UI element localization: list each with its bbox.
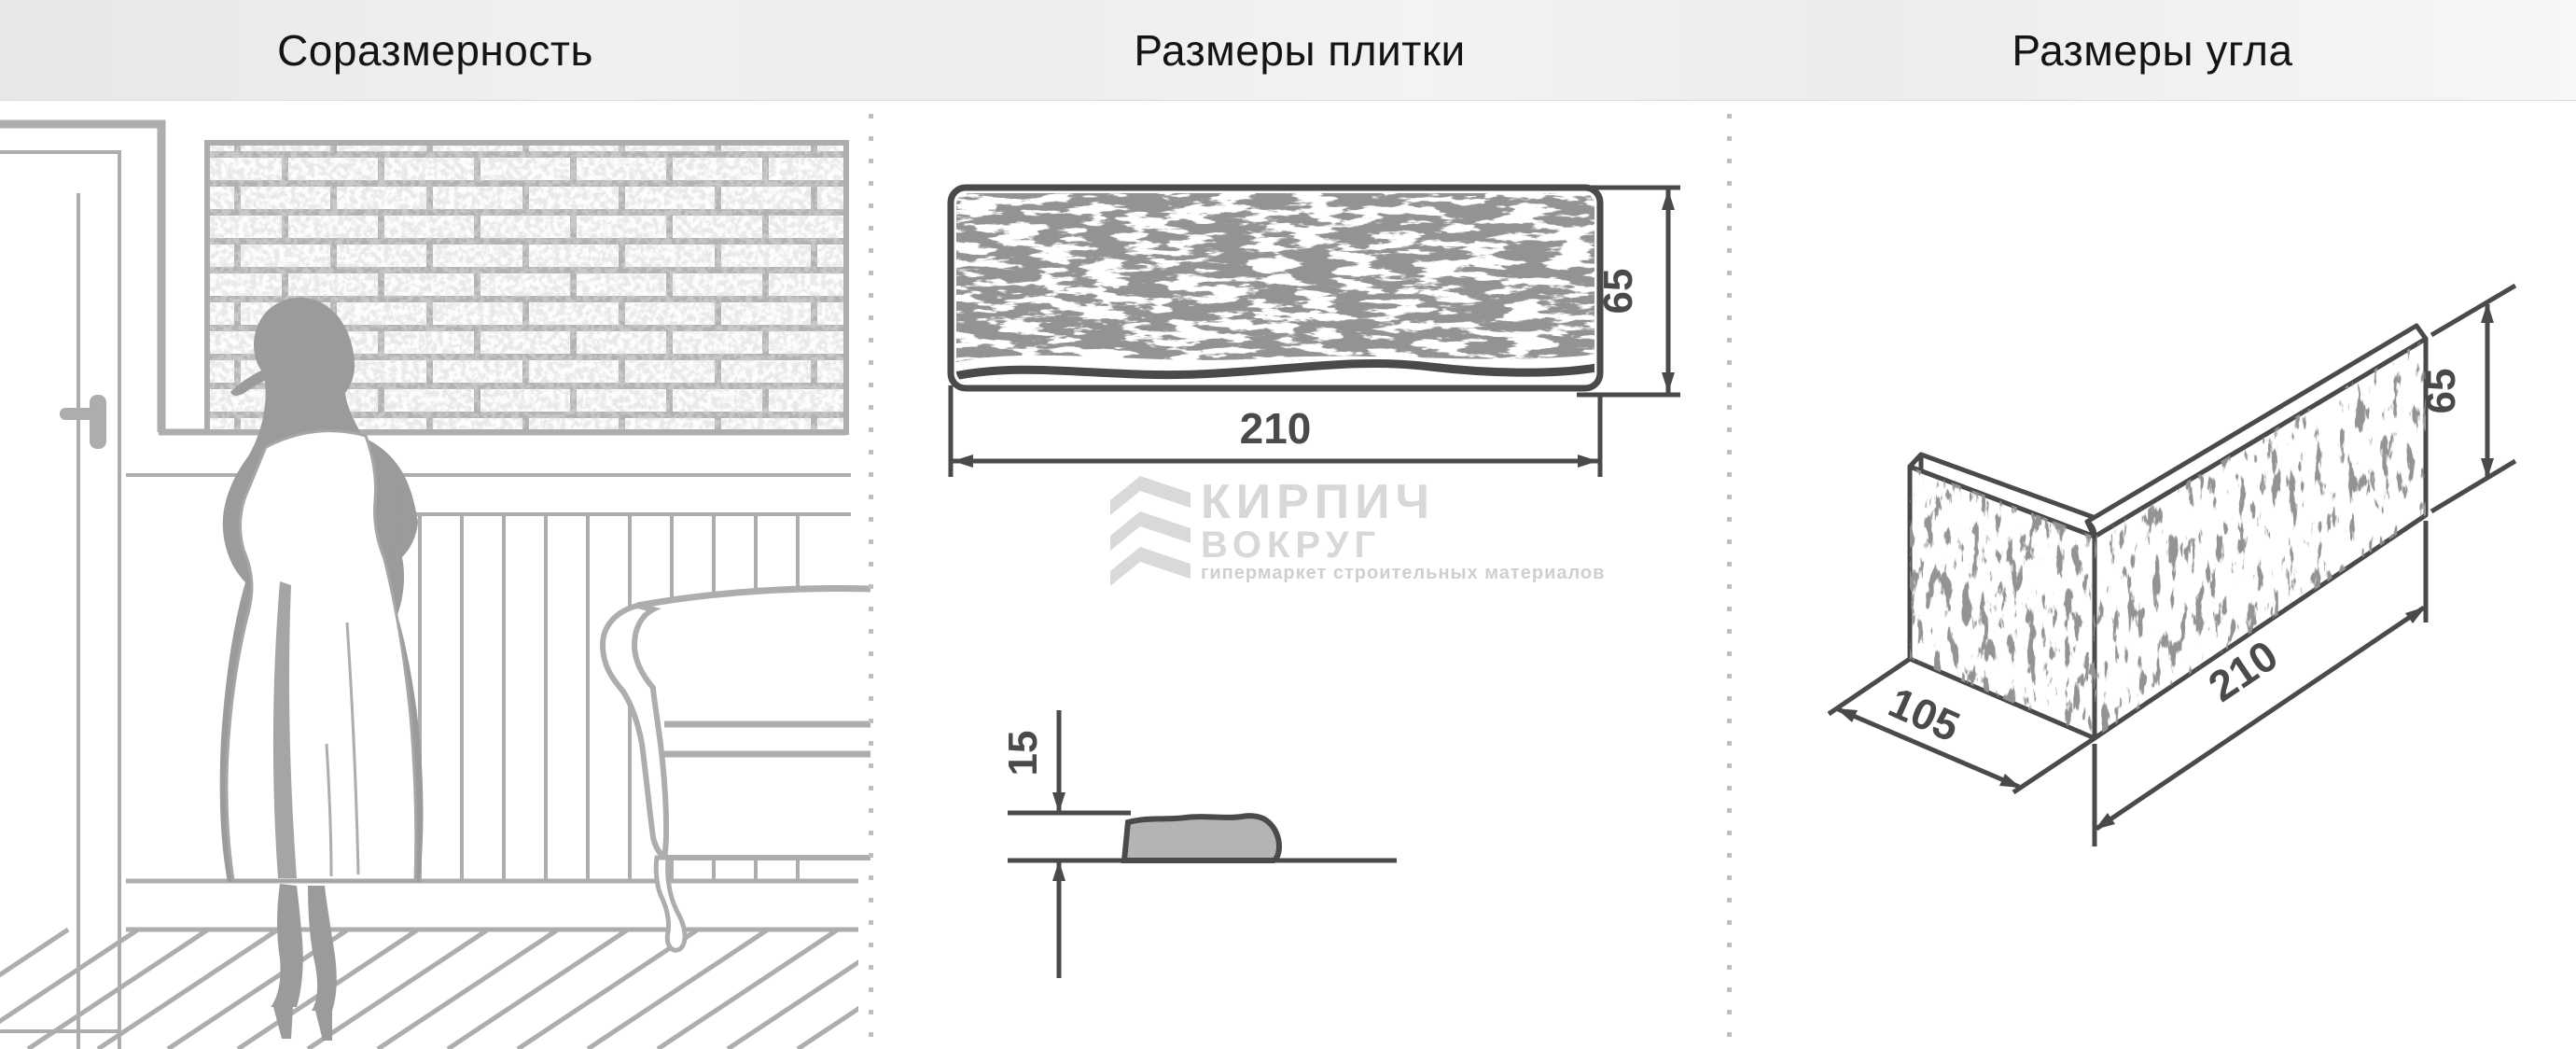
scene-drawing bbox=[0, 100, 870, 1049]
separator-dotted-right bbox=[1727, 114, 1732, 1038]
dim-corner-height-label: 65 bbox=[2418, 369, 2464, 414]
door bbox=[0, 124, 161, 1049]
header-bar: Соразмерность Размеры плитки Размеры угл… bbox=[0, 0, 2576, 101]
logo-caption: гипермаркет строительных материалов bbox=[1201, 563, 1605, 583]
tile-profile-view: 15 bbox=[1000, 710, 1397, 978]
corner-drawing: 65 210 105 bbox=[1729, 100, 2576, 1049]
logo-title: КИРПИЧ bbox=[1201, 475, 1435, 529]
dim-tile-width: 210 bbox=[951, 385, 1600, 477]
dim-tile-width-label: 210 bbox=[1240, 404, 1312, 453]
dim-corner-height: 65 bbox=[2418, 286, 2515, 511]
separator-dotted-left bbox=[869, 114, 873, 1038]
sofa bbox=[603, 589, 870, 951]
title-corner-dimensions: Размеры угла bbox=[1729, 0, 2576, 100]
panel-proportionality bbox=[0, 100, 870, 1049]
dim-tile-thickness: 15 bbox=[1000, 710, 1065, 978]
title-proportionality: Соразмерность bbox=[0, 0, 870, 100]
title-tile-dimensions: Размеры плитки bbox=[870, 0, 1729, 100]
floor bbox=[0, 930, 870, 1049]
logo-watermark: КИРПИЧ ВОКРУГ гипермаркет строительных м… bbox=[1110, 475, 1605, 586]
screenshot-root: Соразмерность Размеры плитки Размеры угл… bbox=[0, 0, 2576, 1049]
logo-subtitle: ВОКРУГ bbox=[1201, 524, 1381, 566]
dim-tile-thickness-label: 15 bbox=[1000, 731, 1046, 776]
corner-piece bbox=[1910, 326, 2427, 740]
panel-tile-dimensions: КИРПИЧ ВОКРУГ гипермаркет строительных м… bbox=[870, 100, 1729, 1049]
tile-drawing: КИРПИЧ ВОКРУГ гипермаркет строительных м… bbox=[870, 100, 1729, 1049]
dim-corner-depth-label: 105 bbox=[1882, 678, 1967, 751]
panel-corner-dimensions: 65 210 105 bbox=[1729, 100, 2576, 1049]
dim-tile-height-label: 65 bbox=[1595, 269, 1641, 315]
door-handle bbox=[60, 395, 106, 449]
tile-front-view bbox=[951, 188, 1600, 388]
logo-icon bbox=[1110, 476, 1191, 586]
